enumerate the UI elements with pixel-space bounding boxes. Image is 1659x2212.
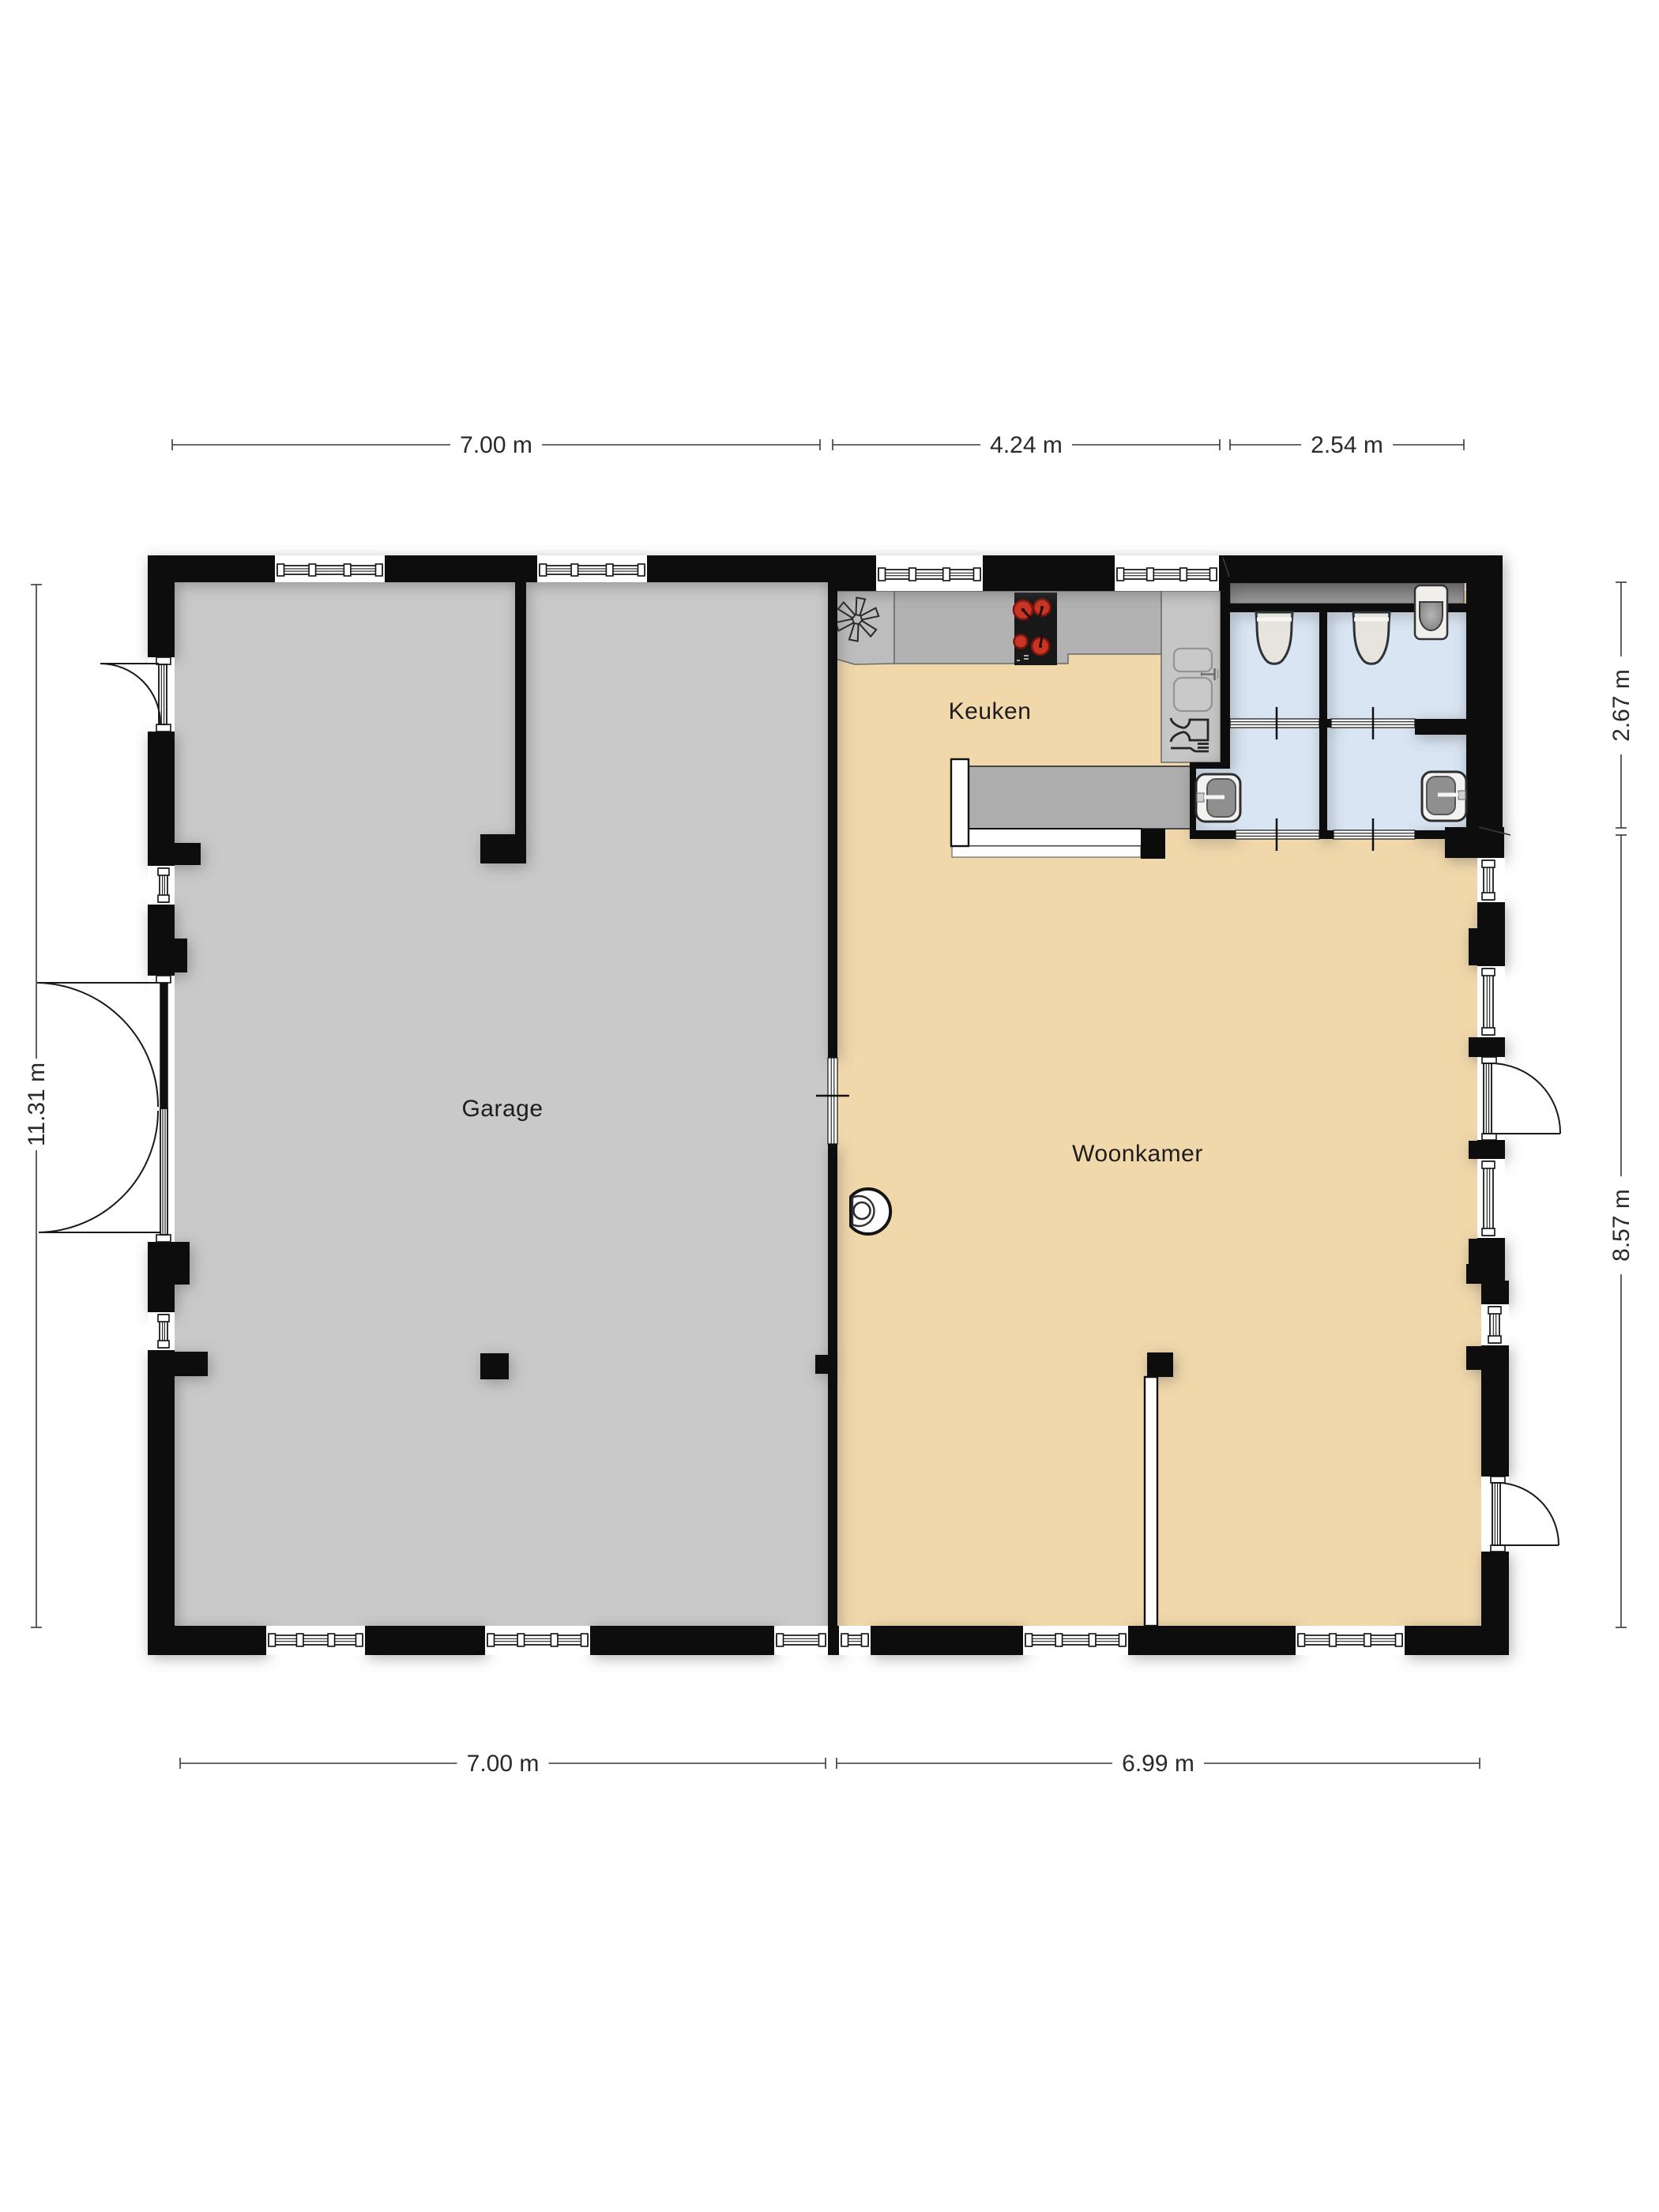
- svg-text:Woonkamer: Woonkamer: [1072, 1141, 1203, 1167]
- svg-text:11.31 m: 11.31 m: [24, 1063, 50, 1146]
- svg-text:8.57 m: 8.57 m: [1608, 1189, 1635, 1262]
- svg-text:2.54 m: 2.54 m: [1311, 432, 1383, 458]
- svg-text:Keuken: Keuken: [949, 698, 1032, 724]
- svg-text:6.99 m: 6.99 m: [1122, 1751, 1194, 1777]
- svg-text:2.67 m: 2.67 m: [1608, 669, 1635, 742]
- svg-text:4.24 m: 4.24 m: [990, 432, 1063, 458]
- svg-text:Garage: Garage: [461, 1096, 543, 1122]
- svg-text:7.00 m: 7.00 m: [460, 432, 532, 458]
- svg-text:7.00 m: 7.00 m: [467, 1751, 540, 1777]
